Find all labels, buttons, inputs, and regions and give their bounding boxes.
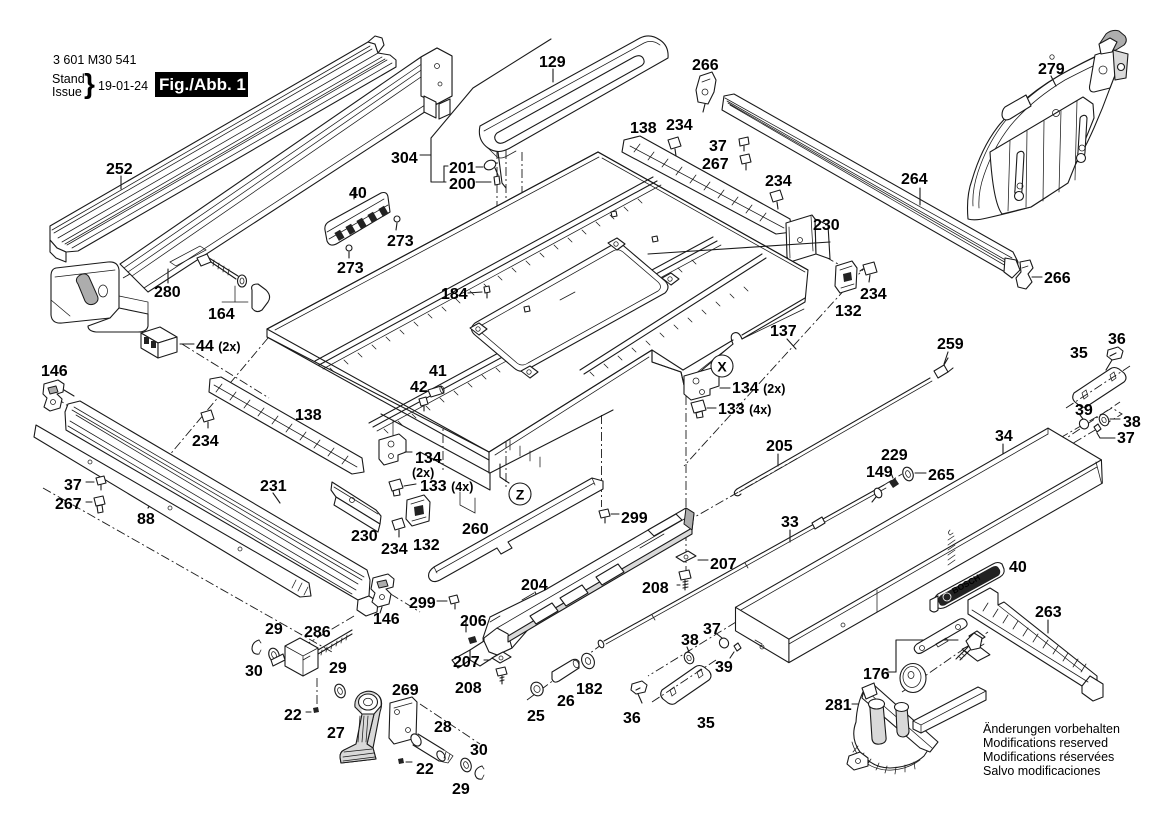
svg-text:Fig./Abb. 1: Fig./Abb. 1 [159,75,246,94]
svg-text:286: 286 [304,624,331,641]
svg-text:27: 27 [327,725,345,742]
svg-text:204: 204 [521,577,548,594]
svg-text:207: 207 [453,654,480,671]
svg-text:133 (4x): 133 (4x) [420,478,473,495]
svg-text:149: 149 [866,464,893,481]
svg-text:44 (2x): 44 (2x) [196,338,240,355]
svg-text:259: 259 [937,336,964,353]
svg-text:266: 266 [692,57,719,74]
svg-text:208: 208 [455,680,482,697]
svg-text:39: 39 [715,659,733,676]
svg-text:234: 234 [765,173,792,190]
svg-text:Modifications réservées: Modifications réservées [983,750,1114,764]
svg-text:299: 299 [621,510,648,527]
svg-text:28: 28 [434,719,452,736]
svg-text:25: 25 [527,708,545,725]
svg-text:40: 40 [349,185,367,202]
svg-text:129: 129 [539,54,566,71]
svg-text:299: 299 [409,595,436,612]
svg-text:35: 35 [697,715,715,732]
svg-text:36: 36 [1108,331,1126,348]
svg-text:40: 40 [1009,559,1027,576]
svg-text:263: 263 [1035,604,1062,621]
svg-text:29: 29 [265,621,283,638]
svg-text:234: 234 [192,433,219,450]
svg-text:133 (4x): 133 (4x) [718,401,771,418]
svg-text:Issue: Issue [52,85,82,99]
svg-text:138: 138 [630,120,657,137]
svg-text:Modifications reserved: Modifications reserved [983,736,1108,750]
svg-text:37: 37 [709,138,727,155]
svg-text:38: 38 [681,632,699,649]
svg-text:Z: Z [516,487,525,503]
svg-text:280: 280 [154,284,181,301]
svg-text:281: 281 [825,697,852,714]
svg-text:137: 137 [770,323,797,340]
svg-text:208: 208 [642,580,669,597]
svg-text:22: 22 [416,761,434,778]
svg-text:234: 234 [666,117,693,134]
svg-text:26: 26 [557,693,575,710]
svg-text:Salvo modificaciones: Salvo modificaciones [983,764,1100,778]
svg-text:41: 41 [429,363,447,380]
svg-text:176: 176 [863,666,890,683]
svg-text:230: 230 [813,217,840,234]
svg-text:}: } [84,68,95,99]
svg-text:234: 234 [381,541,408,558]
svg-text:264: 264 [901,171,928,188]
svg-text:39: 39 [1075,402,1093,419]
svg-text:X: X [717,359,727,375]
svg-text:182: 182 [576,681,603,698]
svg-text:29: 29 [452,781,470,798]
svg-text:38: 38 [1123,414,1141,431]
svg-text:229: 229 [881,447,908,464]
svg-text:201: 201 [449,160,476,177]
svg-text:36: 36 [623,710,641,727]
svg-text:273: 273 [337,260,364,277]
svg-text:252: 252 [106,161,133,178]
svg-text:206: 206 [460,613,487,630]
svg-text:30: 30 [245,663,263,680]
svg-text:134 (2x): 134 (2x) [732,380,785,397]
svg-text:200: 200 [449,176,476,193]
svg-text:Stand: Stand [52,72,85,86]
svg-text:234: 234 [860,286,887,303]
svg-text:19-01-24: 19-01-24 [98,79,148,93]
svg-text:146: 146 [41,363,68,380]
svg-text:88: 88 [137,511,155,528]
svg-text:132: 132 [835,303,862,320]
svg-text:138: 138 [295,407,322,424]
svg-text:273: 273 [387,233,414,250]
svg-text:37: 37 [64,477,82,494]
svg-text:269: 269 [392,682,419,699]
svg-text:29: 29 [329,660,347,677]
svg-text:207: 207 [710,556,737,573]
svg-text:34: 34 [995,428,1013,445]
svg-text:22: 22 [284,707,302,724]
svg-text:266: 266 [1044,270,1071,287]
svg-text:37: 37 [703,621,721,638]
svg-text:30: 30 [470,742,488,759]
svg-text:279: 279 [1038,61,1065,78]
svg-text:132: 132 [413,537,440,554]
svg-text:267: 267 [702,156,729,173]
svg-text:146: 146 [373,611,400,628]
svg-text:265: 265 [928,467,955,484]
svg-text:134: 134 [415,450,442,467]
svg-text:33: 33 [781,514,799,531]
svg-text:37: 37 [1117,430,1135,447]
svg-text:184: 184 [441,286,468,303]
svg-text:Änderungen vorbehalten: Änderungen vorbehalten [983,722,1120,736]
svg-text:164: 164 [208,306,235,323]
svg-text:231: 231 [260,478,287,495]
svg-text:267: 267 [55,496,82,513]
svg-text:35: 35 [1070,345,1088,362]
svg-text:260: 260 [462,521,489,538]
svg-text:304: 304 [391,150,418,167]
svg-text:205: 205 [766,438,793,455]
svg-text:42: 42 [410,379,428,396]
svg-text:230: 230 [351,528,378,545]
svg-text:3 601 M30 541: 3 601 M30 541 [53,53,136,67]
